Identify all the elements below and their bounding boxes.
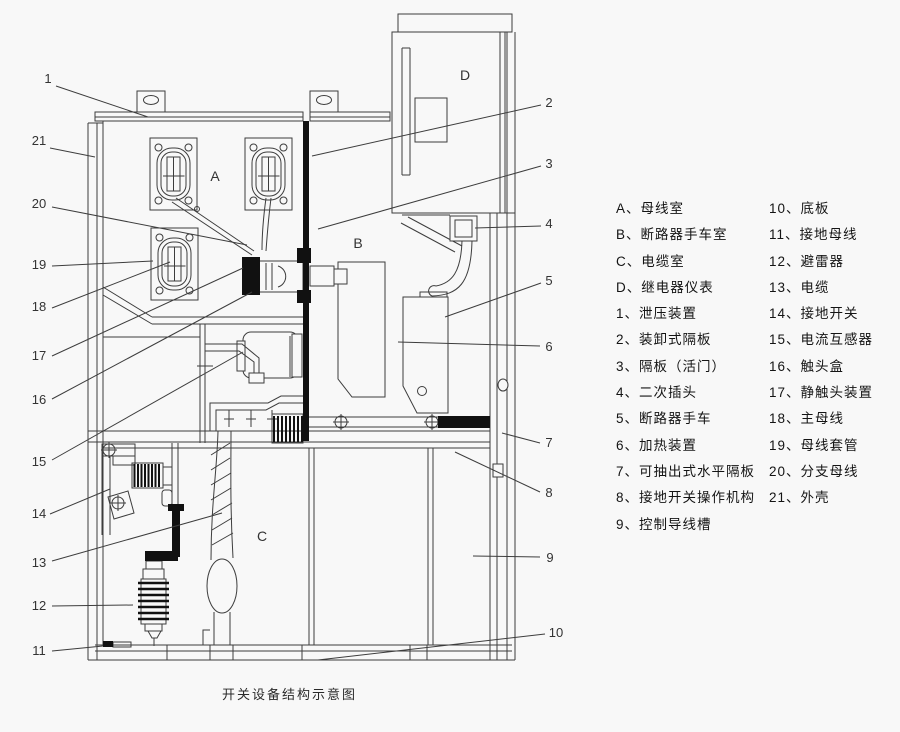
static-contact bbox=[242, 257, 260, 295]
earthing-switch-coil-fins bbox=[135, 464, 160, 487]
right-wall-and-wire-duct bbox=[490, 32, 515, 660]
callout-label-3: 3 bbox=[545, 156, 552, 171]
current-transformer bbox=[237, 332, 302, 383]
legend-item: D、继电器仪表 bbox=[616, 275, 755, 301]
legend-item: 18、主母线 bbox=[769, 406, 873, 432]
leader-line-15 bbox=[52, 352, 243, 460]
lifting-lug bbox=[137, 91, 338, 112]
withdrawable-horizontal-partition bbox=[438, 416, 490, 428]
callout-label-19: 19 bbox=[32, 257, 46, 272]
heating-device-fins bbox=[274, 416, 302, 442]
compartment-label-B: B bbox=[353, 235, 362, 251]
legend-item: 7、可抽出式水平隔板 bbox=[616, 459, 755, 485]
circuit-breaker-handcart bbox=[338, 262, 448, 413]
callout-label-14: 14 bbox=[32, 506, 46, 521]
legend-item: 6、加热装置 bbox=[616, 433, 755, 459]
callout-label-11: 11 bbox=[32, 643, 46, 658]
callout-label-21: 21 bbox=[32, 133, 46, 148]
legend-item: 10、底板 bbox=[769, 196, 873, 222]
callout-label-17: 17 bbox=[32, 348, 46, 363]
leader-line-5 bbox=[445, 283, 541, 317]
callout-label-4: 4 bbox=[545, 216, 552, 231]
arrester-fins bbox=[138, 583, 169, 619]
legend-item: 20、分支母线 bbox=[769, 459, 873, 485]
leader-line-3 bbox=[318, 166, 541, 229]
callout-label-2: 2 bbox=[545, 95, 552, 110]
leader-line-14 bbox=[50, 489, 110, 514]
legend-item: 1、泄压装置 bbox=[616, 301, 755, 327]
callout-label-15: 15 bbox=[32, 454, 46, 469]
callout-label-7: 7 bbox=[545, 435, 552, 450]
leader-line-10 bbox=[318, 634, 545, 660]
relay-instrument-box bbox=[392, 14, 515, 213]
arrester bbox=[141, 561, 166, 646]
legend-item: C、电缆室 bbox=[616, 249, 755, 275]
callout-label-6: 6 bbox=[545, 339, 552, 354]
callout-label-20: 20 bbox=[32, 196, 46, 211]
leader-line-16 bbox=[52, 292, 252, 399]
callout-label-13: 13 bbox=[32, 555, 46, 570]
callout-label-16: 16 bbox=[32, 392, 46, 407]
secondary-plug bbox=[429, 216, 477, 296]
legend-item: 4、二次插头 bbox=[616, 380, 755, 406]
callout-label-5: 5 bbox=[545, 273, 552, 288]
legend-item: 19、母线套管 bbox=[769, 433, 873, 459]
diagram-caption: 开关设备结构示意图 bbox=[222, 684, 357, 703]
leader-line-11 bbox=[52, 646, 103, 651]
legend-item: 8、接地开关操作机构 bbox=[616, 485, 755, 511]
leader-line-9 bbox=[473, 556, 540, 557]
legend-item: 2、装卸式隔板 bbox=[616, 327, 755, 353]
branch-busbar bbox=[172, 198, 271, 255]
legend-item: 16、触头盒 bbox=[769, 354, 873, 380]
legend-item: 12、避雷器 bbox=[769, 249, 873, 275]
callout-label-18: 18 bbox=[32, 299, 46, 314]
earthing-busbar bbox=[103, 641, 113, 647]
callout-label-12: 12 bbox=[32, 598, 46, 613]
legend-item: 21、外壳 bbox=[769, 485, 873, 511]
compartment-label-C: C bbox=[257, 528, 267, 544]
callout-label-9: 9 bbox=[546, 550, 553, 565]
cable-room-frame bbox=[309, 448, 433, 645]
leader-line-18 bbox=[52, 262, 170, 308]
callout-label-8: 8 bbox=[545, 485, 552, 500]
arrester-conductor bbox=[172, 443, 178, 505]
switchgear-structure-diagram: 123456789101112131415161718192021 ABCD A… bbox=[0, 0, 900, 727]
leader-line-12 bbox=[52, 605, 133, 606]
legend-item: 14、接地开关 bbox=[769, 301, 873, 327]
legend-item: 9、控制导线槽 bbox=[616, 512, 755, 538]
leader-line-7 bbox=[502, 433, 540, 443]
power-cable bbox=[203, 431, 237, 645]
compartment-label-A: A bbox=[210, 168, 220, 184]
legend-item: B、断路器手车室 bbox=[616, 222, 755, 248]
contact-box bbox=[258, 261, 347, 292]
legend-item: 3、隔板（活门） bbox=[616, 354, 755, 380]
legend-item: 17、静触头装置 bbox=[769, 380, 873, 406]
legend-item: 11、接地母线 bbox=[769, 222, 873, 248]
legend-column-left: A、母线室B、断路器手车室C、电缆室D、继电器仪表1、泄压装置2、装卸式隔板3、… bbox=[616, 196, 755, 538]
diagram-canvas: 123456789101112131415161718192021 ABCD bbox=[0, 0, 900, 727]
legend-item: 13、电缆 bbox=[769, 275, 873, 301]
pressure-relief-plate bbox=[95, 112, 390, 121]
arrester-connection-bar bbox=[145, 504, 184, 561]
legend-item: 15、电流互感器 bbox=[769, 327, 873, 353]
legend-item: A、母线室 bbox=[616, 196, 755, 222]
legend-column-right: 10、底板11、接地母线12、避雷器13、电缆14、接地开关15、电流互感器16… bbox=[769, 196, 873, 512]
leader-line-13 bbox=[52, 513, 222, 561]
callout-label-1: 1 bbox=[44, 71, 51, 86]
callout-label-10: 10 bbox=[549, 625, 563, 640]
leader-line-4 bbox=[475, 226, 541, 228]
compartment-label-D: D bbox=[460, 67, 470, 83]
legend-item: 5、断路器手车 bbox=[616, 406, 755, 432]
earthing-switch bbox=[101, 442, 172, 535]
